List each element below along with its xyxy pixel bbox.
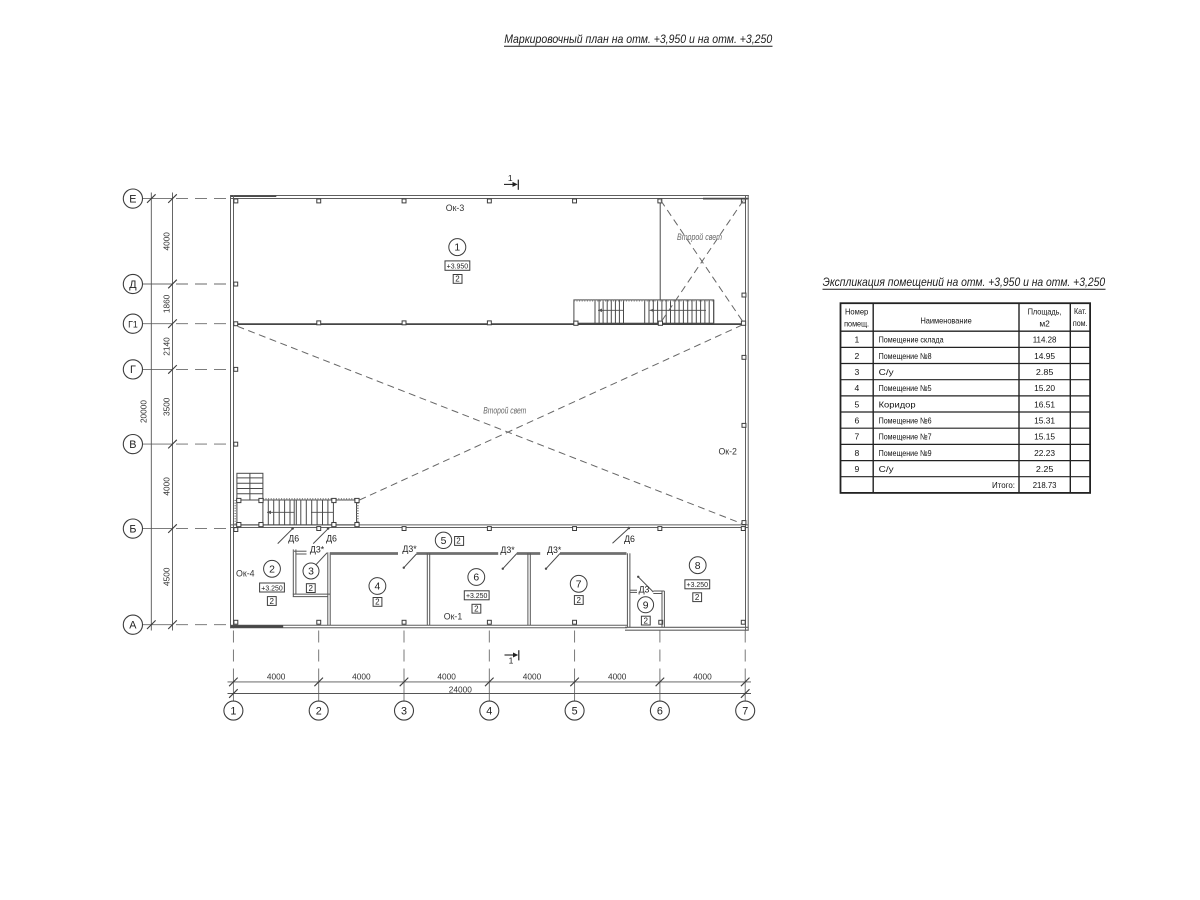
svg-text:14.95: 14.95 — [1034, 351, 1055, 361]
svg-text:Номер: Номер — [845, 307, 869, 317]
svg-text:Второй свет: Второй свет — [483, 406, 526, 416]
svg-text:С/у: С/у — [879, 464, 895, 474]
svg-text:Г1: Г1 — [128, 320, 138, 330]
svg-text:2: 2 — [308, 584, 313, 593]
svg-text:2: 2 — [855, 351, 860, 361]
svg-text:2: 2 — [474, 605, 479, 614]
svg-text:3: 3 — [855, 367, 860, 377]
svg-text:Помещение №5: Помещение №5 — [879, 383, 932, 393]
svg-text:9: 9 — [643, 600, 649, 611]
svg-text:Е: Е — [129, 193, 136, 205]
svg-text:+3.250: +3.250 — [261, 583, 283, 592]
svg-text:4: 4 — [375, 582, 381, 593]
svg-text:Д6: Д6 — [288, 534, 299, 544]
svg-text:218.73: 218.73 — [1033, 480, 1057, 490]
svg-text:Ок-2: Ок-2 — [718, 447, 737, 457]
svg-text:3500: 3500 — [161, 397, 171, 416]
svg-text:2: 2 — [269, 564, 275, 575]
svg-text:2: 2 — [269, 597, 274, 606]
svg-text:Кат.: Кат. — [1074, 306, 1086, 316]
svg-text:4000: 4000 — [161, 477, 171, 496]
svg-text:15.15: 15.15 — [1034, 432, 1055, 442]
svg-text:8: 8 — [855, 448, 860, 458]
svg-text:Ок-4: Ок-4 — [236, 569, 255, 579]
svg-text:20000: 20000 — [139, 400, 149, 423]
svg-text:2.25: 2.25 — [1036, 464, 1054, 474]
svg-text:1: 1 — [508, 173, 513, 183]
svg-text:Коридор: Коридор — [879, 399, 916, 409]
svg-text:Д3*: Д3* — [310, 544, 325, 554]
svg-text:Ок-1: Ок-1 — [444, 611, 463, 621]
svg-text:+3.250: +3.250 — [466, 591, 488, 600]
svg-text:Экспликация помещений на отм.: Экспликация помещений на отм. +3,950 и н… — [823, 276, 1106, 289]
svg-text:6: 6 — [657, 705, 663, 717]
svg-text:+3.950: +3.950 — [447, 261, 469, 270]
svg-text:16.51: 16.51 — [1034, 399, 1055, 409]
svg-text:4500: 4500 — [161, 567, 171, 586]
svg-text:24000: 24000 — [449, 684, 472, 694]
svg-text:Маркировочный план на отм. +3,: Маркировочный план на отм. +3,950 и на о… — [504, 33, 772, 46]
svg-text:+3.250: +3.250 — [687, 580, 709, 589]
svg-text:7: 7 — [742, 705, 748, 717]
svg-text:22.23: 22.23 — [1034, 448, 1055, 458]
svg-text:9: 9 — [855, 464, 860, 474]
svg-text:Г: Г — [130, 364, 136, 376]
svg-text:2: 2 — [375, 598, 380, 607]
svg-text:Б: Б — [129, 523, 136, 535]
svg-text:114.28: 114.28 — [1033, 335, 1057, 345]
svg-text:2.85: 2.85 — [1036, 367, 1054, 377]
svg-text:Наименование: Наименование — [920, 316, 972, 326]
svg-text:Д3: Д3 — [639, 585, 650, 595]
svg-text:1860: 1860 — [161, 294, 171, 313]
svg-text:4000: 4000 — [161, 232, 171, 251]
svg-text:6: 6 — [855, 415, 860, 425]
svg-text:В: В — [129, 439, 136, 451]
svg-text:5: 5 — [441, 536, 447, 547]
svg-text:1: 1 — [509, 656, 514, 666]
svg-text:2: 2 — [576, 596, 581, 605]
svg-text:2: 2 — [695, 593, 700, 602]
svg-text:7: 7 — [855, 432, 860, 442]
svg-text:помещ.: помещ. — [844, 319, 869, 329]
svg-text:Д3*: Д3* — [547, 545, 562, 555]
svg-text:4000: 4000 — [523, 672, 542, 682]
svg-text:Помещение склада: Помещение склада — [879, 335, 944, 345]
svg-text:Д3*: Д3* — [402, 544, 417, 554]
svg-text:8: 8 — [695, 561, 701, 572]
svg-text:А: А — [129, 620, 137, 632]
svg-text:Помещение №7: Помещение №7 — [879, 432, 932, 442]
svg-text:3: 3 — [401, 705, 407, 717]
svg-text:2: 2 — [456, 536, 461, 545]
svg-text:7: 7 — [576, 579, 582, 590]
svg-text:Площадь,: Площадь, — [1028, 307, 1062, 317]
svg-text:5: 5 — [572, 705, 578, 717]
svg-text:пом.: пом. — [1073, 318, 1088, 328]
svg-text:4000: 4000 — [608, 672, 627, 682]
svg-text:2: 2 — [643, 616, 648, 625]
svg-text:Д3*: Д3* — [500, 545, 515, 555]
svg-text:2: 2 — [455, 275, 460, 284]
svg-text:1: 1 — [230, 705, 236, 717]
svg-text:Второй свет: Второй свет — [677, 232, 722, 242]
svg-text:4000: 4000 — [267, 672, 286, 682]
svg-text:4000: 4000 — [352, 672, 371, 682]
svg-text:4: 4 — [486, 705, 492, 717]
svg-text:Помещение №9: Помещение №9 — [879, 448, 932, 458]
svg-text:2140: 2140 — [161, 337, 171, 356]
svg-text:15.31: 15.31 — [1034, 415, 1055, 425]
svg-text:15.20: 15.20 — [1034, 383, 1055, 393]
svg-text:4000: 4000 — [437, 672, 456, 682]
svg-text:3: 3 — [308, 567, 314, 578]
svg-text:5: 5 — [855, 399, 860, 409]
svg-text:Ок-3: Ок-3 — [446, 203, 465, 213]
svg-text:Д6: Д6 — [624, 534, 635, 544]
svg-text:Помещение №8: Помещение №8 — [879, 351, 932, 361]
svg-text:2: 2 — [316, 705, 322, 717]
svg-text:4000: 4000 — [693, 672, 712, 682]
svg-text:Помещение №6: Помещение №6 — [879, 415, 932, 425]
svg-text:4: 4 — [855, 383, 860, 393]
svg-text:1: 1 — [855, 335, 860, 345]
svg-text:Итого:: Итого: — [992, 480, 1015, 490]
svg-text:Д: Д — [129, 279, 137, 291]
svg-text:6: 6 — [473, 573, 479, 584]
svg-text:Д6: Д6 — [326, 534, 337, 544]
svg-text:м2: м2 — [1039, 319, 1050, 329]
svg-text:1: 1 — [454, 243, 460, 254]
svg-text:С/у: С/у — [879, 367, 895, 377]
